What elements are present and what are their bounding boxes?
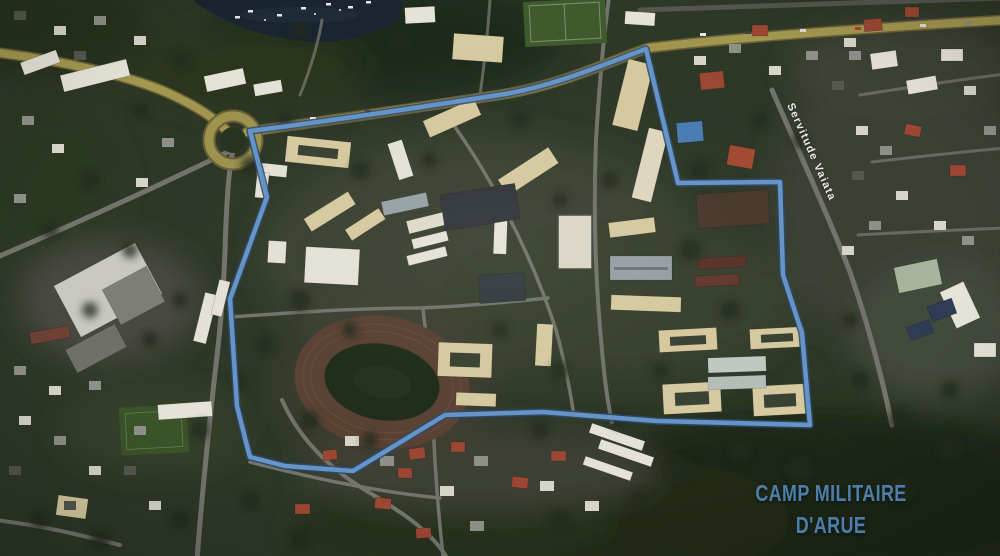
- camp-title: CAMP MILITAIRE D'ARUE: [741, 477, 920, 541]
- vignette-overlay: [0, 0, 1000, 556]
- satellite-map: Servitude Vaiata CAMP MILITAIRE D'ARUE: [0, 0, 1000, 556]
- camp-title-line1: CAMP MILITAIRE: [741, 477, 920, 509]
- satellite-canvas[interactable]: Servitude Vaiata: [0, 0, 1000, 556]
- camp-title-line2: D'ARUE: [741, 509, 920, 541]
